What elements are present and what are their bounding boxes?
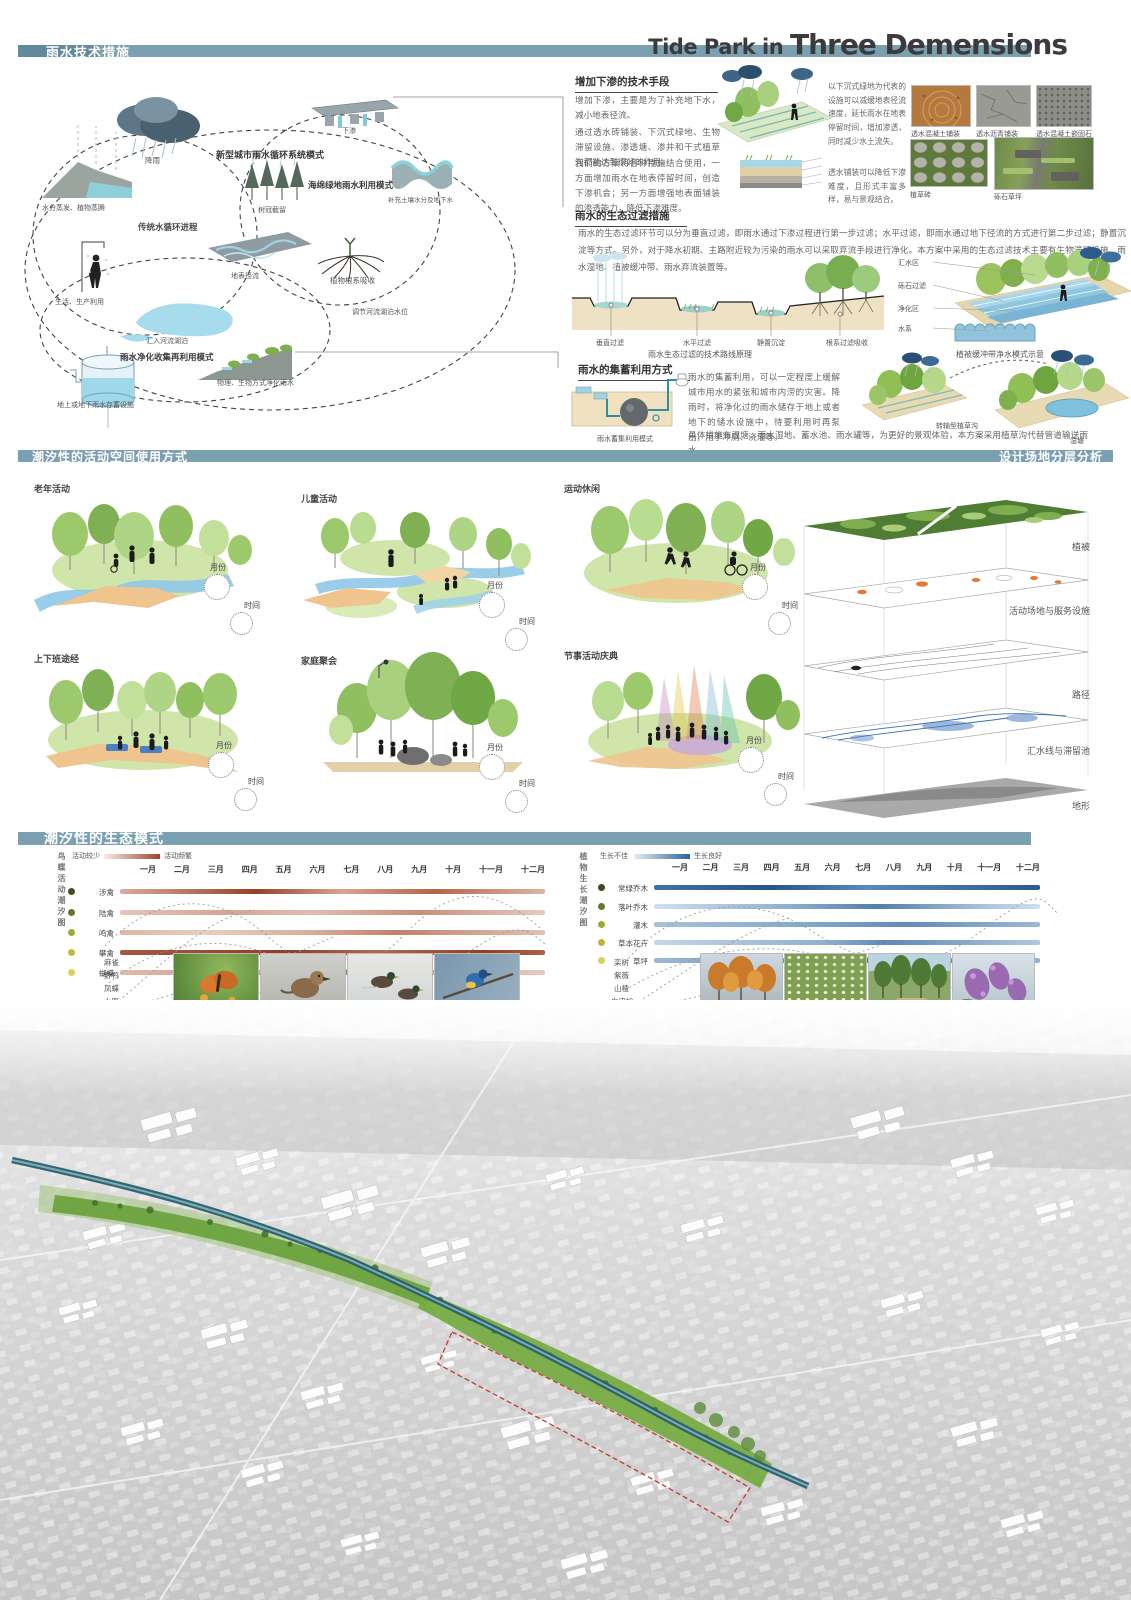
activity-card-family: 家庭聚会 月份 时间 bbox=[295, 650, 550, 820]
layer-activity bbox=[804, 568, 1088, 608]
month-dial bbox=[479, 592, 505, 618]
pond-label: 湿塘 bbox=[1070, 436, 1084, 446]
poster-title: Tide Park in Three Demensions bbox=[648, 28, 1067, 61]
bird-legend-gradient bbox=[104, 854, 160, 859]
plant-species-2: 紫薇 bbox=[614, 970, 629, 981]
month-dial bbox=[208, 752, 234, 778]
photo5-caption: 砾石草坪 bbox=[994, 192, 1022, 202]
time-dial bbox=[764, 783, 787, 806]
month-tick: 十月 bbox=[445, 864, 461, 875]
toilet-icon bbox=[676, 374, 688, 386]
plant-row1-dot bbox=[598, 884, 605, 891]
photo-grass-paver bbox=[910, 139, 988, 187]
swale-label: 转输型植草沟 bbox=[936, 421, 978, 431]
label-traditional: 传统水循环进程 bbox=[138, 221, 198, 233]
label-infiltration: 下渗 bbox=[342, 126, 356, 136]
section1-title: 雨水技术措施 bbox=[46, 42, 130, 61]
plant-legend-high: 生长良好 bbox=[694, 851, 722, 861]
layer-label-terrain: 地形 bbox=[1072, 799, 1090, 812]
bird-row5-dot bbox=[68, 969, 75, 976]
layer-label-vegetation: 植被 bbox=[1072, 540, 1090, 553]
time-dial bbox=[230, 612, 253, 635]
filter-step1: 垂直过滤 bbox=[596, 338, 624, 348]
photo-permeable-concrete-aggregate bbox=[1036, 85, 1092, 127]
domestic-use-illustration bbox=[82, 242, 109, 292]
month-tick: 十一月 bbox=[479, 864, 503, 875]
time-dial-label: 时间 bbox=[248, 776, 264, 787]
label-storage: 地上或地下雨水存蓄设施 bbox=[57, 400, 134, 410]
month-tick: 一月 bbox=[140, 864, 156, 875]
poster-title-prefix: Tide Park in bbox=[648, 35, 790, 59]
bird-chart-months: 一月二月三月四月五月六月七月八月九月十月十一月十二月 bbox=[140, 864, 545, 875]
time-dial bbox=[505, 628, 528, 651]
label-regulate: 调节河流湖泊水位 bbox=[352, 307, 408, 317]
label-canopy: 树冠截留 bbox=[258, 205, 286, 215]
bird-row3-dot bbox=[68, 929, 75, 936]
rain-cloud-icon bbox=[117, 97, 200, 158]
activity-card-sports: 运动休闲 月份 时间 bbox=[558, 478, 813, 648]
label-evaporation: 水分蒸发、植物蒸腾 bbox=[42, 203, 105, 213]
label-roots: 植物根系吸收 bbox=[330, 275, 375, 286]
section2-title-left: 潮汐性的活动空间使用方式 bbox=[32, 448, 188, 465]
layer-label-paths: 路径 bbox=[1072, 688, 1090, 701]
label-sponge-mode: 海绵绿地雨水利用模式 bbox=[308, 179, 393, 191]
label-runoff: 地表径流 bbox=[231, 271, 259, 281]
soil-water-illustration bbox=[392, 162, 452, 189]
month-tick: 四月 bbox=[242, 864, 258, 875]
design-poster: 雨水技术措施 Tide Park in Three Demensions bbox=[0, 0, 1131, 1600]
layer-water bbox=[804, 708, 1088, 748]
filter-step2: 水平过滤 bbox=[683, 338, 711, 348]
infiltration-note2: 透水铺装可以降低下渗难度，且形式丰富多样，易与景观结合。 bbox=[828, 166, 906, 207]
filter-section-diagram bbox=[572, 252, 884, 344]
filter-step4: 根系过滤吸收 bbox=[826, 338, 868, 348]
month-dial-label: 月份 bbox=[487, 742, 503, 753]
label-rain: 降雨 bbox=[145, 155, 160, 166]
buffer-callout-4: 水系 bbox=[898, 324, 912, 334]
plant-legend-gradient bbox=[634, 854, 690, 859]
month-dial bbox=[479, 754, 505, 780]
filter-heading: 雨水的生态过滤措施 bbox=[575, 208, 687, 227]
photo-permeable-asphalt bbox=[976, 85, 1031, 127]
layer-terrain bbox=[804, 778, 1088, 818]
section3-bar: 潮汐性的生态模式 bbox=[18, 832, 1031, 845]
section-strip bbox=[740, 155, 822, 188]
plant-chart-axis-label: 植物生长潮汐图 bbox=[578, 852, 589, 929]
layer-label-activity: 活动场地与服务设施 bbox=[1009, 604, 1090, 617]
activity-card-children: 儿童活动 月份 时间 bbox=[295, 488, 550, 658]
storage-diagram bbox=[572, 374, 690, 434]
filter-step3: 静置沉淀 bbox=[757, 338, 785, 348]
month-tick: 八月 bbox=[377, 864, 393, 875]
month-dial-label: 月份 bbox=[746, 735, 762, 746]
buffer-callout-3: 净化区 bbox=[898, 304, 919, 314]
bird-species-1: 麻雀 bbox=[104, 957, 119, 968]
infiltration-note1: 以下沉式绿地为代表的设施可以减缓地表径流速度，延长雨水在地表停留时间，增加渗透，… bbox=[828, 80, 906, 148]
layer-label-water: 汇水线与滞留池 bbox=[1027, 744, 1090, 757]
bird-species-2: 野鸭 bbox=[104, 970, 119, 981]
bird-row4-dot bbox=[68, 949, 75, 956]
layer-paths bbox=[804, 640, 1088, 680]
bird-row1-dot bbox=[68, 888, 75, 895]
month-tick: 十二月 bbox=[521, 864, 545, 875]
activity-card-elderly: 老年活动 月份 时间 bbox=[28, 478, 283, 648]
swale-pond-illustration bbox=[850, 350, 1131, 442]
sunken-green-illustration bbox=[710, 62, 838, 210]
section2-title-right: 设计场地分层分析 bbox=[999, 448, 1103, 465]
section3-title: 潮汐性的生态模式 bbox=[44, 828, 164, 848]
month-tick: 三月 bbox=[208, 864, 224, 875]
photo4-caption: 植草砖 bbox=[910, 190, 931, 200]
buffer-waves bbox=[955, 324, 1035, 341]
month-dial-label: 月份 bbox=[750, 562, 766, 573]
buffer-callout-1: 汇水区 bbox=[898, 258, 919, 268]
month-dial bbox=[204, 574, 230, 600]
month-dial bbox=[738, 747, 764, 773]
plant-row5-dot bbox=[598, 957, 605, 964]
buffer-strip-diagram bbox=[885, 245, 1131, 350]
month-tick: 五月 bbox=[276, 864, 292, 875]
label-new-mode: 新型城市雨水循环系统模式 bbox=[216, 148, 324, 161]
plant-row3-dot bbox=[598, 921, 605, 928]
month-tick: 六月 bbox=[310, 864, 326, 875]
plant-legend-low: 生长不佳 bbox=[600, 851, 628, 861]
label-life-use: 生活、生产利用 bbox=[55, 297, 104, 307]
photo1-caption: 透水混凝土铺装 bbox=[911, 129, 960, 139]
month-tick: 二月 bbox=[174, 864, 190, 875]
activity-card-festival: 节事活动庆典 月份 bbox=[558, 645, 813, 815]
activity-card-commute: 上下班途经 月份 时间 bbox=[28, 648, 283, 818]
label-purify-ways: 物理、生物方式净化雨水 bbox=[217, 378, 294, 388]
photo-permeable-concrete bbox=[911, 85, 971, 127]
time-dial bbox=[234, 788, 257, 811]
plant-row2-dot bbox=[598, 903, 605, 910]
month-tick: 九月 bbox=[411, 864, 427, 875]
plant-row4-dot bbox=[598, 939, 605, 946]
time-dial-label: 时间 bbox=[519, 778, 535, 789]
month-tick: 七月 bbox=[343, 864, 359, 875]
runoff-illustration bbox=[208, 232, 312, 262]
time-dial-label: 时间 bbox=[244, 600, 260, 611]
label-purify-mode: 雨水净化收集再利用模式 bbox=[120, 351, 214, 363]
infiltration-p1: 增加下渗，主要是为了补充地下水，减小地表径流。 bbox=[575, 94, 720, 124]
month-dial-label: 月份 bbox=[487, 580, 503, 591]
photo-gravel-lawn bbox=[994, 137, 1094, 190]
bird-chart-axis-label: 鸟蝶活动潮汐图 bbox=[56, 852, 67, 929]
poster-title-main: Three Demensions bbox=[790, 28, 1067, 61]
plant-species-3: 山楂 bbox=[614, 983, 629, 994]
plant-species-1: 栾树 bbox=[614, 957, 629, 968]
storage-caption: 雨水蓄集利用模式 bbox=[597, 434, 653, 444]
time-dial-label: 时间 bbox=[519, 616, 535, 627]
section2-bar: 潮汐性的活动空间使用方式 设计场地分层分析 bbox=[18, 450, 1113, 462]
infiltration-illustration bbox=[312, 100, 398, 128]
aerial-masterplan bbox=[0, 1000, 1131, 1600]
bird-legend-high: 活动频繁 bbox=[164, 851, 192, 861]
month-dial bbox=[742, 574, 768, 600]
time-dial bbox=[768, 612, 791, 635]
site-layers-diagram bbox=[798, 492, 1098, 814]
filter-caption-left: 雨水生态过滤的技术路线原理 bbox=[648, 349, 752, 360]
time-dial-label: 时间 bbox=[778, 771, 794, 782]
pond-group bbox=[995, 350, 1129, 428]
month-dial-label: 月份 bbox=[210, 562, 226, 573]
time-dial bbox=[505, 790, 528, 813]
label-to-river: 汇入河流湖泊 bbox=[146, 336, 188, 346]
buffer-callout-2: 砾石过滤 bbox=[898, 281, 926, 291]
time-dial-label: 时间 bbox=[782, 600, 798, 611]
bird-legend-low: 活动较少 bbox=[72, 851, 100, 861]
month-dial-label: 月份 bbox=[216, 740, 232, 751]
layer-vegetation bbox=[804, 500, 1088, 540]
infiltration-heading: 增加下渗的技术手段 bbox=[575, 74, 718, 93]
swale-group bbox=[862, 353, 967, 421]
bird-row2-dot bbox=[68, 909, 75, 916]
bird-species-3: 凤蝶 bbox=[104, 983, 119, 994]
label-soil-water: 补充土壤水分及地下水 bbox=[388, 194, 453, 204]
